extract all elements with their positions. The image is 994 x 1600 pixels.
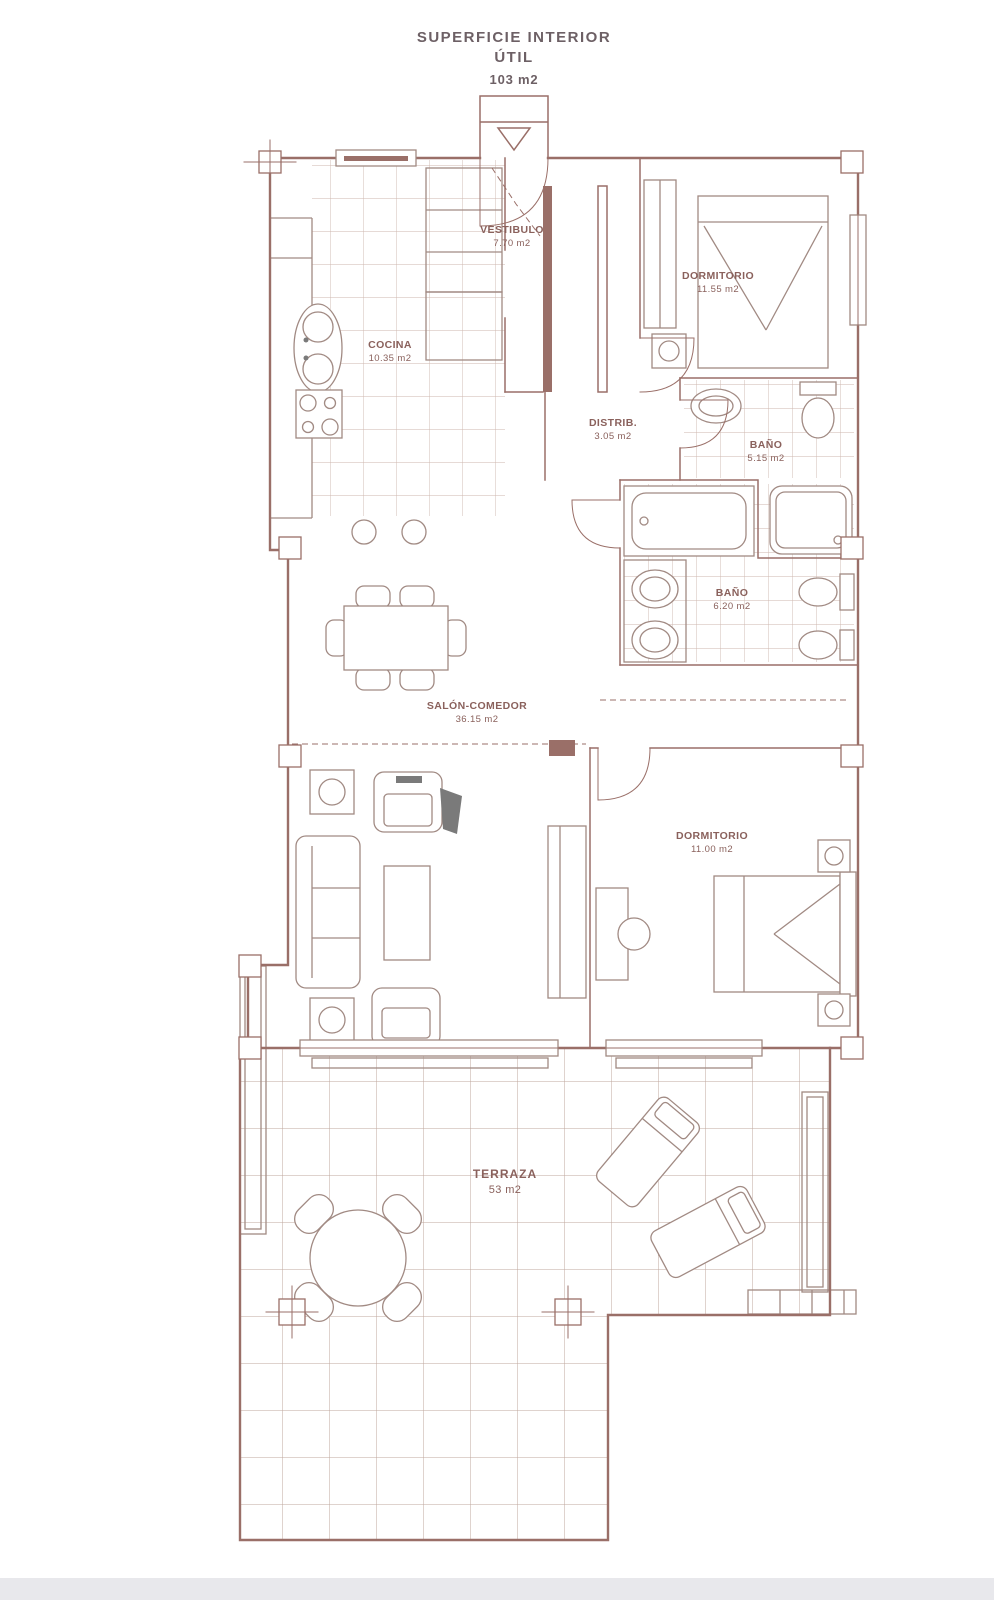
room-label-distrib: DISTRIB. 3.05 m2	[589, 417, 637, 443]
bidet-tank	[840, 630, 854, 660]
plan-title: SUPERFICIE INTERIOR ÚTIL 103 m2	[409, 28, 619, 88]
plan-title-text: SUPERFICIE INTERIOR ÚTIL	[417, 29, 611, 66]
room-label-terraza: TERRAZA 53 m2	[473, 1167, 537, 1197]
desk-chair	[618, 918, 650, 950]
cushion	[396, 776, 422, 783]
nightstand	[818, 994, 850, 1026]
bedroom2-door	[598, 748, 650, 800]
dining-chair	[400, 668, 434, 690]
dining-chair	[400, 586, 434, 608]
bidet-bowl	[799, 631, 837, 659]
side-table	[310, 998, 354, 1042]
stool	[402, 520, 426, 544]
side-table	[310, 770, 354, 814]
washbasin	[632, 621, 678, 659]
living-room-furniture	[296, 520, 586, 1046]
nightstand	[818, 840, 850, 872]
room-label-salon: SALÓN-COMEDOR 36.15 m2	[427, 700, 527, 726]
footer-strip	[0, 1578, 994, 1600]
bedroom2-furniture	[596, 840, 856, 1026]
tv-sideboard	[548, 826, 586, 998]
room-label-cocina: COCINA 10.35 m2	[368, 339, 412, 365]
sofa	[296, 836, 360, 988]
pocket-wall	[543, 186, 552, 392]
entrance-arrow-icon	[498, 128, 530, 150]
room-label-dormitorio1: DORMITORIO 11.55 m2	[682, 270, 754, 296]
room-label-bano2: BAÑO 6.20 m2	[713, 587, 750, 613]
toilet-tank	[800, 382, 836, 395]
bed-headboard	[840, 872, 856, 996]
dining-table	[344, 606, 448, 670]
column	[549, 740, 575, 756]
cushion	[440, 788, 462, 834]
floor-plan-page: SUPERFICIE INTERIOR ÚTIL 103 m2 VESTIBUL…	[0, 0, 994, 1600]
room-label-dormitorio2: DORMITORIO 11.00 m2	[676, 830, 748, 856]
entrance-porch	[480, 96, 548, 158]
terrace-round-table	[310, 1210, 406, 1306]
kitchen-sink	[294, 304, 342, 392]
toilet-bowl	[799, 578, 837, 606]
toilet-bowl	[802, 398, 834, 438]
terrace-table-set	[289, 1189, 426, 1326]
dining-chair	[356, 668, 390, 690]
plan-title-area: 103 m2	[409, 71, 619, 89]
bathroom2-door	[572, 500, 620, 548]
toilet-tank	[840, 574, 854, 610]
room-label-vestibulo: VESTIBULO 7.70 m2	[480, 224, 544, 250]
bed	[714, 876, 840, 992]
room-label-bano1: BAÑO 5.15 m2	[747, 439, 784, 465]
nightstand	[652, 334, 686, 368]
bathtub	[624, 486, 754, 556]
washbasin	[632, 570, 678, 608]
coffee-table	[384, 866, 430, 960]
stool	[352, 520, 376, 544]
dining-chair	[356, 586, 390, 608]
